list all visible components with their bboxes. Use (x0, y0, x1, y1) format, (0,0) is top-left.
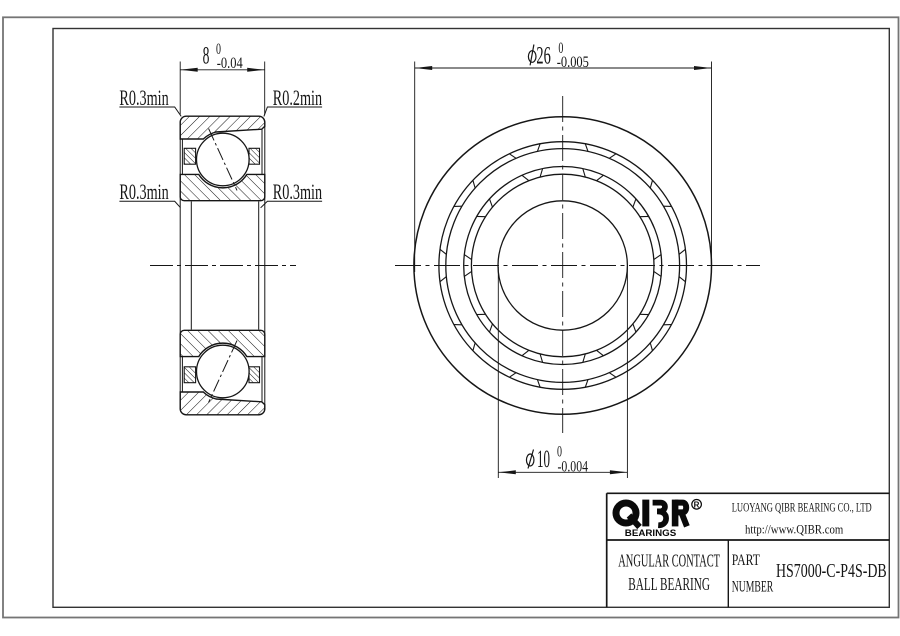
svg-text:R0.3min: R0.3min (119, 179, 168, 204)
svg-text:R0.2min: R0.2min (273, 85, 322, 110)
svg-text:BALL BEARING: BALL BEARING (628, 574, 710, 594)
svg-text:R: R (694, 500, 700, 509)
svg-text:-0.004: -0.004 (558, 459, 589, 476)
svg-text:R0.3min: R0.3min (119, 85, 168, 110)
svg-text:PART: PART (732, 552, 761, 569)
svg-text:BEARINGS: BEARINGS (625, 528, 676, 538)
svg-text:http://www.QIBR.com: http://www.QIBR.com (745, 523, 843, 537)
svg-text:HS7000-C-P4S-DB: HS7000-C-P4S-DB (776, 560, 887, 582)
svg-text:R0.3min: R0.3min (273, 179, 322, 204)
svg-text:LUOYANG QIBR BEARING CO., LTD: LUOYANG QIBR BEARING CO., LTD (732, 501, 872, 515)
svg-text:ANGULAR CONTACT: ANGULAR CONTACT (618, 551, 720, 571)
svg-text:-0.005: -0.005 (557, 54, 589, 71)
svg-text:26: 26 (536, 43, 550, 70)
svg-text:-0.04: -0.04 (217, 55, 243, 72)
svg-text:NUMBER: NUMBER (732, 579, 774, 596)
svg-text:10: 10 (537, 446, 550, 473)
svg-text:8: 8 (203, 42, 210, 69)
